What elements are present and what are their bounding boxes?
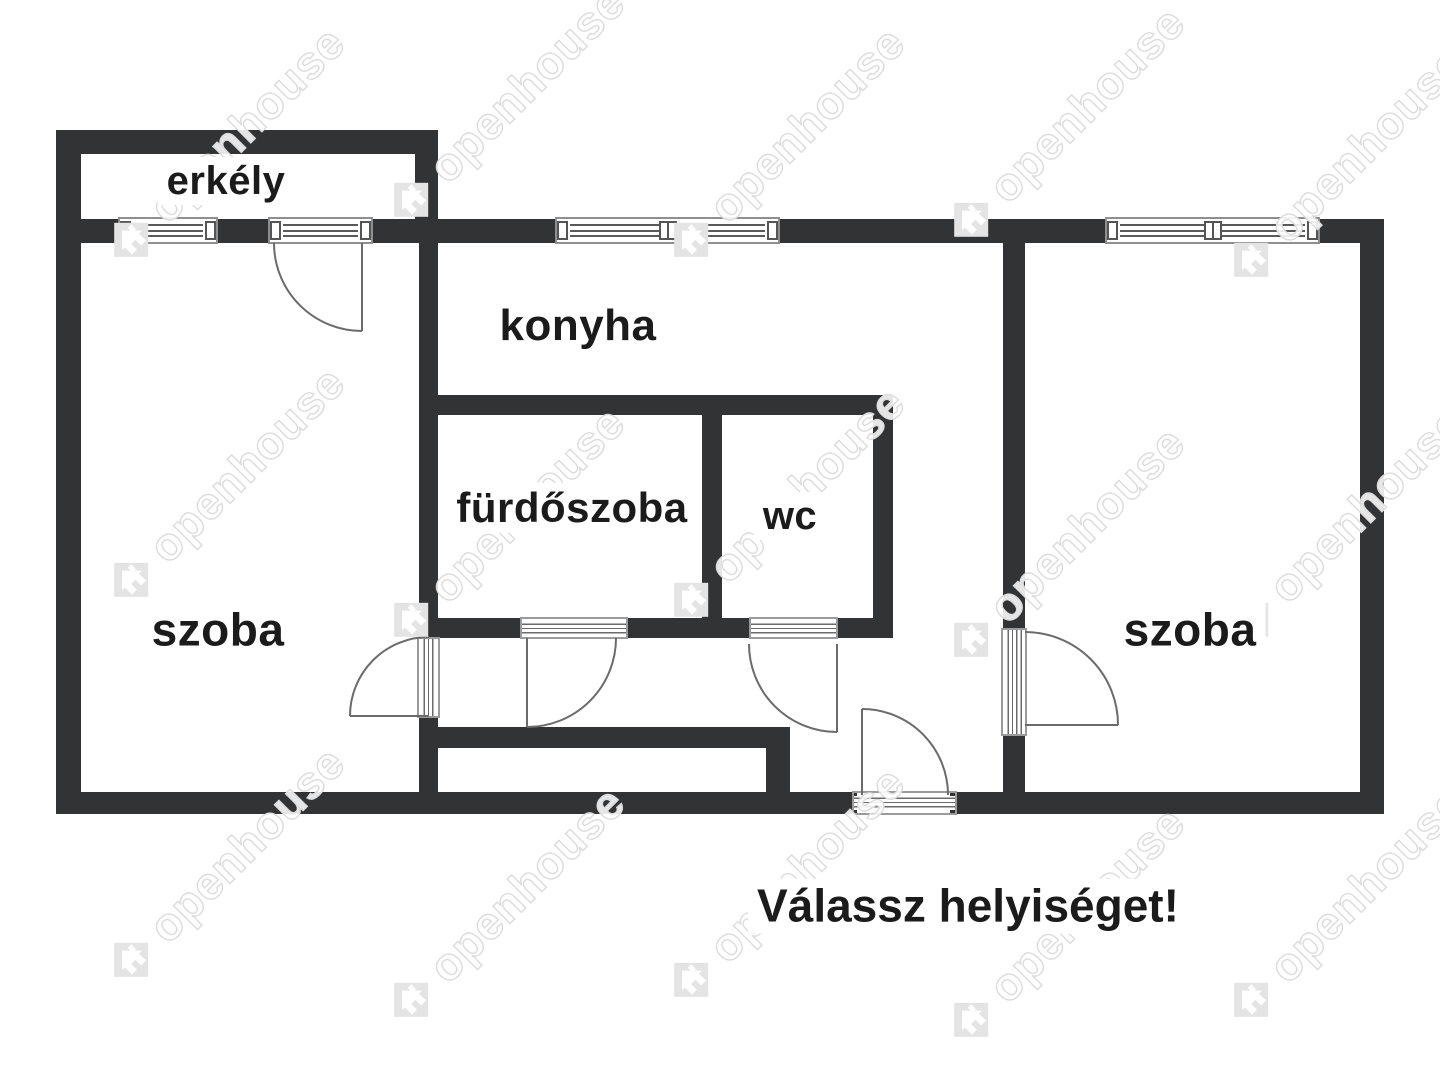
- wall-top-pier-b: [218, 219, 268, 243]
- wall-bathroom-top: [419, 395, 893, 415]
- wall-bottom-right: [950, 792, 1384, 814]
- wc-door-arc: [749, 644, 837, 732]
- openhouse-house-icon: [93, 922, 169, 998]
- openhouse-house-icon: [933, 982, 1009, 1058]
- wall-nook-right: [766, 748, 790, 792]
- door-threshold-entry: [852, 791, 957, 815]
- watermark: openhouse: [1213, 775, 1440, 1038]
- window-room-right: [1105, 217, 1320, 244]
- wall-hall-bottom: [419, 727, 790, 748]
- openhouse-house-icon: [373, 962, 449, 1038]
- window-kitchen: [555, 217, 780, 244]
- wall-top-pier-a: [81, 219, 118, 243]
- door-threshold-right-room: [1001, 628, 1027, 736]
- entry-door-arc: [862, 709, 948, 795]
- watermark: openhouse: [373, 775, 636, 1038]
- room-hotspot-wc[interactable]: [722, 415, 873, 618]
- wall-wc-right: [873, 415, 893, 638]
- wall-divider-left-upper: [419, 243, 438, 637]
- wall-bathroom-bottom-a: [419, 618, 520, 638]
- wall-divider-right-upper: [1003, 243, 1025, 628]
- wall-top-middle: [780, 219, 1105, 243]
- wall-top-pier-c: [373, 219, 438, 243]
- wall-wc-bottom-c: [838, 618, 893, 638]
- wall-bottom-left: [56, 792, 857, 814]
- room-hotspot-szoba-left[interactable]: [81, 243, 419, 792]
- room-hotspot-furdoszoba[interactable]: [439, 415, 702, 618]
- wall-balcony-top: [56, 130, 438, 154]
- floor-plan: openhouse openhouse openhouse openhouse …: [0, 0, 1440, 1080]
- choose-room-prompt: Válassz helyiséget!: [748, 879, 1188, 934]
- wall-bathroom-wc-divider: [702, 415, 722, 618]
- openhouse-house-icon: [1213, 962, 1289, 1038]
- openhouse-house-icon: [653, 942, 729, 1018]
- wall-bathroom-bottom-b: [628, 618, 749, 638]
- room-hotspot-szoba-right[interactable]: [1025, 243, 1360, 792]
- window-balcony-door: [268, 217, 373, 244]
- bathroom-door-arc: [527, 638, 616, 727]
- room-hotspot-erkely[interactable]: [81, 154, 415, 218]
- wall-outer-right: [1360, 219, 1384, 814]
- door-threshold-bathroom: [520, 617, 628, 639]
- window-balcony-left: [118, 217, 218, 244]
- wall-outer-left: [56, 130, 81, 814]
- room-hotspot-konyha[interactable]: [438, 243, 1003, 395]
- door-threshold-wc: [749, 617, 838, 639]
- wall-divider-right-lower: [1003, 736, 1025, 792]
- door-threshold-left-room: [417, 637, 440, 718]
- openhouse-house-icon: [933, 602, 1009, 678]
- wall-kitchen-top-left: [438, 219, 555, 243]
